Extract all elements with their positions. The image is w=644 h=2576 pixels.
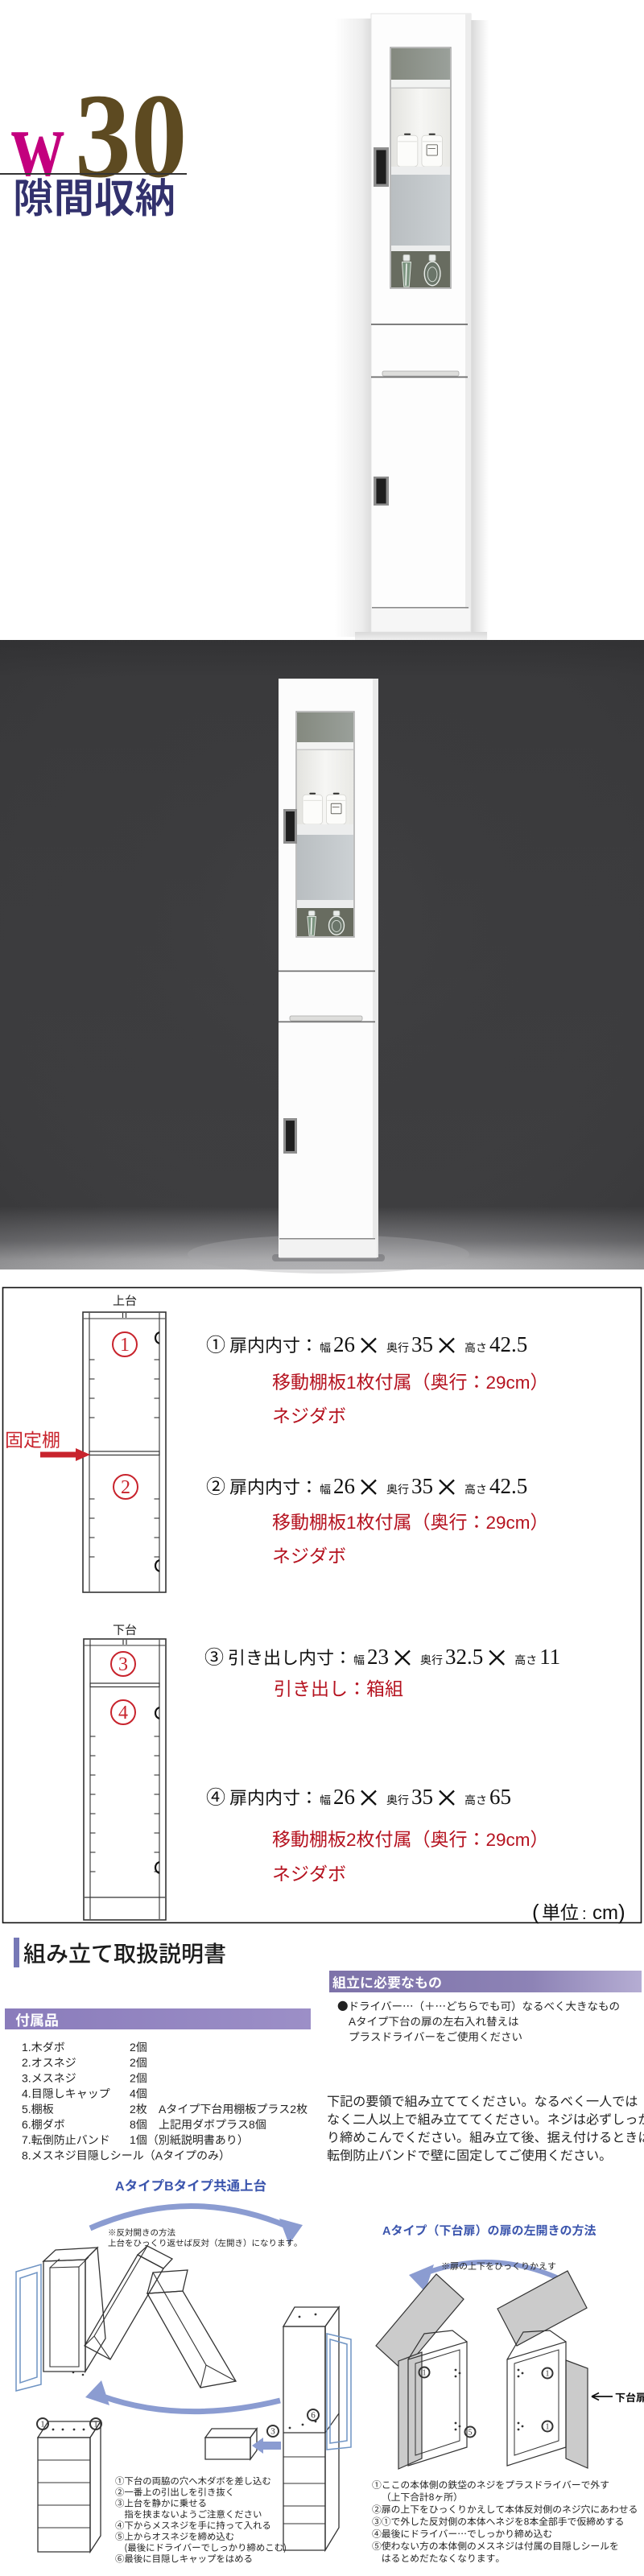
svg-text:2: 2	[130, 2103, 136, 2116]
svg-text:A: A	[159, 2103, 167, 2116]
svg-text:26: 26	[333, 1785, 355, 1809]
svg-text:42.5: 42.5	[489, 1474, 527, 1498]
svg-text:A: A	[115, 2180, 125, 2194]
svg-text:1: 1	[130, 2133, 136, 2146]
svg-text:2: 2	[290, 2103, 296, 2116]
svg-text:4: 4	[130, 2087, 136, 2100]
svg-text:26: 26	[333, 1332, 355, 1356]
svg-text:1: 1	[346, 1513, 357, 1533]
svg-text:29cm: 29cm	[486, 1373, 530, 1393]
svg-text:5: 5	[469, 2428, 473, 2437]
svg-text:): )	[618, 1900, 625, 1924]
svg-text:6.: 6.	[22, 2118, 31, 2131]
svg-text:8: 8	[249, 2118, 255, 2131]
svg-text:1: 1	[423, 2368, 427, 2377]
svg-text:6: 6	[311, 2411, 316, 2421]
svg-text:A: A	[155, 2149, 163, 2161]
svg-text:29cm: 29cm	[486, 1513, 530, 1533]
svg-text:1: 1	[40, 2420, 45, 2429]
svg-text:8: 8	[524, 2516, 530, 2528]
svg-text:7.: 7.	[22, 2133, 31, 2146]
svg-text:A: A	[382, 2225, 391, 2238]
svg-text:1.: 1.	[22, 2041, 31, 2054]
svg-text:5.: 5.	[22, 2103, 31, 2116]
svg-text:2.: 2.	[22, 2056, 31, 2069]
svg-text:8: 8	[429, 2491, 435, 2503]
svg-text:26: 26	[333, 1474, 355, 1498]
svg-text:4.: 4.	[22, 2087, 31, 2100]
svg-text:B: B	[164, 2180, 174, 2194]
svg-text:4: 4	[118, 1703, 128, 1724]
svg-text:cm: cm	[592, 1902, 618, 1924]
svg-text:8.: 8.	[22, 2149, 31, 2161]
svg-text:35: 35	[411, 1332, 433, 1356]
svg-text:35: 35	[411, 1474, 433, 1498]
svg-text:2: 2	[130, 2071, 136, 2084]
svg-text:1: 1	[93, 2420, 98, 2429]
svg-text:11: 11	[539, 1645, 560, 1669]
svg-text:1: 1	[546, 2369, 550, 2378]
svg-text:35: 35	[411, 1785, 433, 1809]
svg-text:2: 2	[121, 1477, 130, 1498]
svg-text:32.5: 32.5	[445, 1645, 483, 1669]
svg-text:65: 65	[489, 1785, 511, 1809]
svg-text:1: 1	[546, 2422, 550, 2431]
svg-text::: :	[582, 1905, 587, 1923]
svg-text:23: 23	[367, 1645, 389, 1669]
svg-text:8: 8	[130, 2118, 136, 2131]
svg-text:(: (	[532, 1900, 539, 1924]
svg-text:1: 1	[346, 1373, 357, 1393]
svg-text:3: 3	[118, 1654, 128, 1675]
svg-text:2: 2	[130, 2056, 136, 2069]
svg-text:2: 2	[346, 1830, 357, 1850]
svg-text:3: 3	[270, 2427, 275, 2437]
svg-text:42.5: 42.5	[489, 1332, 527, 1356]
svg-text:29cm: 29cm	[486, 1830, 530, 1850]
svg-text:3.: 3.	[22, 2071, 31, 2084]
svg-text:1: 1	[120, 1335, 130, 1356]
svg-text:2: 2	[130, 2041, 136, 2054]
svg-text:A: A	[349, 2016, 356, 2028]
